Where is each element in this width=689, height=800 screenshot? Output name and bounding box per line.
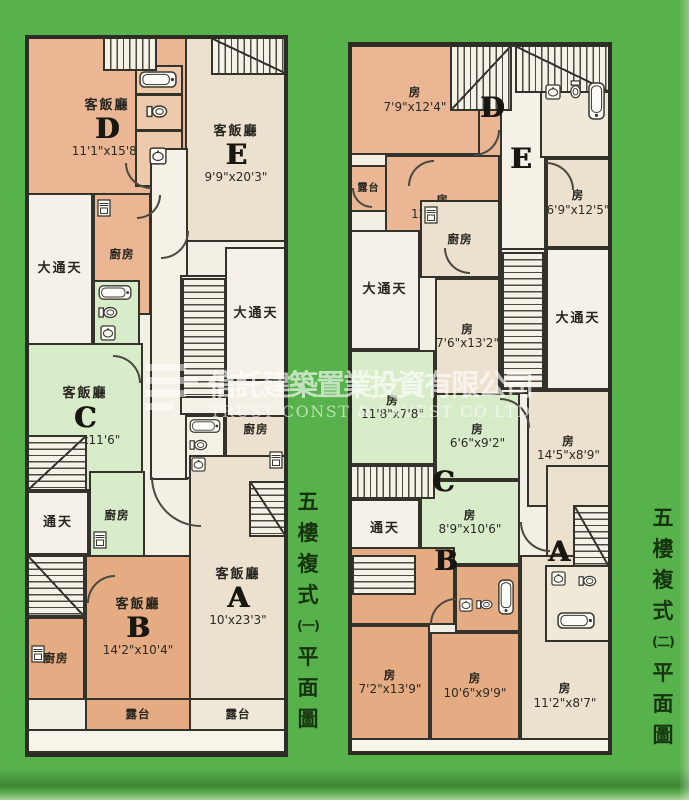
plan1-balcony-a: 露台 <box>189 698 287 731</box>
room-type-label: 房 <box>559 682 572 695</box>
plan1-lightwell-small: 通天 <box>27 491 89 555</box>
room-dimensions: 7'2"x13'9" <box>359 683 422 696</box>
bathtub-icon <box>498 572 514 622</box>
plan2-unit-b-room2: 房 10'6"x9'9" <box>430 632 520 740</box>
caption-char: 平 <box>653 658 674 689</box>
caption-char: 式 <box>653 596 674 627</box>
room-type-label: 房 <box>464 509 477 522</box>
room-dimensions: 6'6"x9'2" <box>450 437 505 450</box>
unit-letter: B <box>434 547 458 575</box>
floor-plan-1: 客飯廳 D 11'1"x15'8" 客飯廳 E 9'9"x20'3" 大通天 廚… <box>25 35 288 757</box>
room-dimensions: 14'5"x8'9" <box>537 449 600 462</box>
unit-letter: C <box>432 468 454 496</box>
room-dimensions: 11'1"x15'8" <box>72 145 143 158</box>
plan1-lightwell-large-right: 大通天 <box>225 247 287 381</box>
kitchen-sink-icon <box>424 206 438 224</box>
floor-plan-2: 房 7'9"x12'4" D 房 12'2"x7'6" 露台 E 房 6'9"x… <box>348 42 612 755</box>
toilet-icon <box>146 103 168 120</box>
room-dimensions: 7'6"x13'2" <box>436 337 499 350</box>
plan1-unit-b-living-room: 客飯廳 B 14'2"x10'4" <box>85 555 191 700</box>
room-type-label: 大通天 <box>37 262 82 276</box>
plan2-unit-c-room1: 房 11'8"x7'8" <box>350 350 435 465</box>
plan1-bottom-ledge <box>27 729 286 753</box>
caption-char: 式 <box>298 580 319 611</box>
door-arc <box>520 522 550 552</box>
plan2-bottom-ledge <box>350 738 610 753</box>
staircase <box>573 505 610 567</box>
room-type-label: 房 <box>386 394 399 407</box>
room-dimensions: 11'8"x7'8" <box>361 408 424 421</box>
washbasin-icon <box>191 457 206 472</box>
room-type-label: 大通天 <box>555 312 600 326</box>
plan1-lightwell-large-left: 大通天 <box>27 193 93 345</box>
room-type-label: 廚房 <box>110 248 135 261</box>
bathtub-icon <box>139 71 177 88</box>
washbasin-icon <box>100 325 116 341</box>
plan2-caption: 五 樓 複 式 (二) 平 面 圖 <box>645 503 681 751</box>
room-type-label: 露台 <box>126 708 151 721</box>
room-dimensions: 8'9"x10'6" <box>439 523 502 536</box>
room-type-label: 客飯廳 <box>62 387 107 401</box>
washbasin-icon <box>149 147 167 165</box>
caption-char: (二) <box>652 627 674 658</box>
plan1-caption: 五 樓 複 式 (一) 平 面 圖 <box>290 487 326 735</box>
staircase <box>211 37 287 75</box>
washbasin-icon <box>545 84 561 100</box>
unit-letter: D <box>480 94 504 122</box>
unit-letter: D <box>95 115 119 143</box>
wall <box>137 129 181 132</box>
unit-letter: A <box>227 584 249 612</box>
bathtub-icon <box>588 82 605 120</box>
kitchen-sink-icon <box>97 199 111 217</box>
plan2-unit-e-room2: 房 7'6"x13'2" <box>435 278 500 395</box>
room-type-label: 大通天 <box>233 307 278 321</box>
page-bottom-edge <box>0 768 689 800</box>
central-staircase <box>502 252 544 390</box>
room-type-label: 房 <box>572 189 585 202</box>
wall <box>137 93 181 96</box>
room-type-label: 通天 <box>370 522 400 536</box>
room-type-label: 廚房 <box>44 652 69 665</box>
room-dimensions: 6'9"x12'5" <box>547 204 610 217</box>
staircase <box>352 555 416 595</box>
kitchen-sink-icon <box>31 645 45 663</box>
caption-char: (一) <box>297 611 319 642</box>
bathtub-icon <box>556 612 596 629</box>
door-arc <box>151 477 201 527</box>
caption-char: 複 <box>653 565 674 596</box>
room-type-label: 廚房 <box>105 509 130 522</box>
room-type-label: 房 <box>469 672 482 685</box>
room-type-label: 通天 <box>43 516 73 530</box>
plan2-lightwell-large-left: 大通天 <box>350 230 420 350</box>
room-type-label: 廚房 <box>448 233 473 246</box>
room-type-label: 房 <box>461 323 474 336</box>
kitchen-sink-icon <box>269 451 283 469</box>
page-right-edge <box>680 0 689 800</box>
caption-char: 圖 <box>298 704 319 735</box>
room-type-label: 客飯廳 <box>215 568 260 582</box>
plan2-unit-b-room1: 房 7'2"x13'9" <box>350 625 430 740</box>
bathtub-icon <box>188 419 222 433</box>
toilet-icon <box>578 574 597 588</box>
room-type-label: 廚房 <box>244 423 269 436</box>
caption-char: 面 <box>298 673 319 704</box>
unit-letter: B <box>126 614 150 642</box>
room-dimensions: 10'6"x9'9" <box>444 687 507 700</box>
caption-char: 圖 <box>653 720 674 751</box>
caption-char: 面 <box>653 689 674 720</box>
plan1-balcony-b: 露台 <box>85 698 191 731</box>
room-type-label: 客飯廳 <box>84 99 129 113</box>
room-type-label: 客飯廳 <box>213 125 258 139</box>
room-type-label: 房 <box>562 435 575 448</box>
plan2-lightwell-large-right: 大通天 <box>546 248 610 390</box>
kitchen-sink-icon <box>93 531 107 549</box>
washbasin-icon <box>459 598 473 612</box>
central-staircase <box>182 278 226 398</box>
staircase <box>27 435 87 491</box>
room-type-label: 大通天 <box>362 283 407 297</box>
unit-letter: E <box>225 141 246 169</box>
caption-char: 五 <box>653 503 674 534</box>
toilet-icon <box>476 598 493 611</box>
room-type-label: 客飯廳 <box>115 598 160 612</box>
staircase <box>350 465 435 499</box>
room-type-label: 露台 <box>226 708 251 721</box>
room-dimensions: 10'x23'3" <box>209 614 266 627</box>
caption-char: 樓 <box>653 534 674 565</box>
caption-char: 平 <box>298 642 319 673</box>
bathtub-icon <box>97 285 133 300</box>
unit-letter: A <box>548 538 570 566</box>
room-dimensions: 14'2"x10'4" <box>103 644 174 657</box>
toilet-icon <box>568 80 583 99</box>
toilet-icon <box>189 438 208 452</box>
room-type-label: 房 <box>384 669 397 682</box>
room-dimensions: 11'2"x8'7" <box>534 697 597 710</box>
brochure-page: { "page_background": "#58b24b", "waterma… <box>0 0 689 800</box>
room-type-label: 房 <box>471 423 484 436</box>
caption-char: 樓 <box>298 518 319 549</box>
unit-letter: C <box>74 404 96 432</box>
toilet-icon <box>98 305 118 320</box>
unit-letter: E <box>510 145 531 173</box>
caption-char: 五 <box>298 487 319 518</box>
room-type-label: 房 <box>409 86 422 99</box>
caption-char: 複 <box>298 549 319 580</box>
washbasin-icon <box>551 571 566 586</box>
staircase <box>249 481 287 537</box>
room-dimensions: 9'9"x20'3" <box>205 171 268 184</box>
staircase <box>103 37 157 71</box>
staircase <box>27 555 85 617</box>
door-arc <box>500 398 530 428</box>
room-dimensions: 7'9"x12'4" <box>384 101 447 114</box>
